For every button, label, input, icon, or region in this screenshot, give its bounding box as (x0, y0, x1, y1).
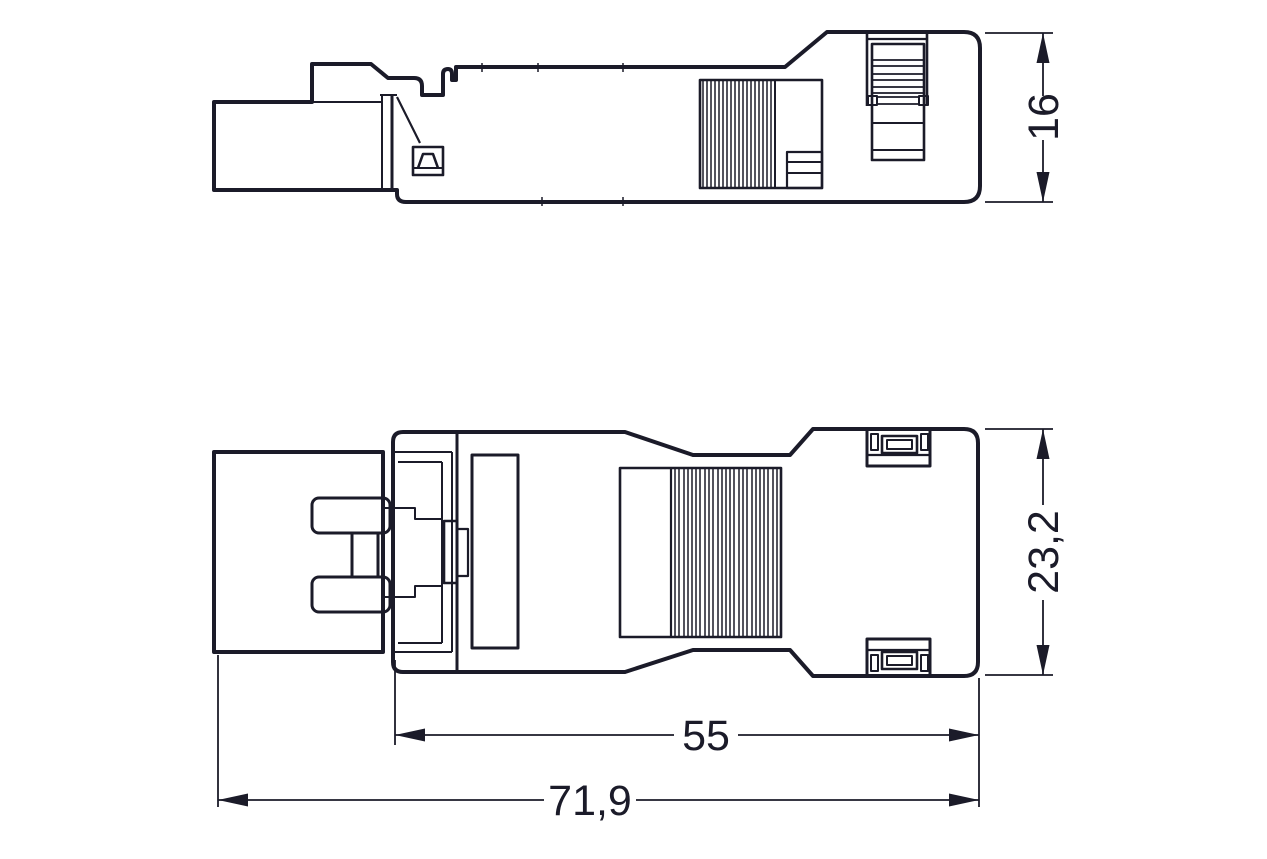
dimension-arrow-down (1037, 645, 1050, 675)
seam-tick (482, 63, 623, 206)
wedge-icon (418, 154, 438, 168)
dimension-arrow-left (218, 794, 248, 807)
dimension-overall-length: 71,9 (218, 655, 979, 825)
dimension-label: 71,9 (548, 777, 632, 825)
plan-view: 23,2 55 71,9 (214, 429, 1068, 825)
grip-corner-box-lines (787, 162, 822, 173)
center-tab-inner (457, 529, 468, 576)
connector-dimension-drawing: 16 (0, 0, 1267, 859)
dimension-arrow-right (949, 794, 979, 807)
pin-upper (312, 498, 390, 533)
dimension-label: 55 (682, 712, 730, 760)
marking-window (472, 455, 518, 648)
latch-top (867, 429, 930, 466)
slider-lower-lines (872, 123, 924, 150)
dimension-label: 16 (1020, 93, 1068, 141)
dimension-arrow-up (1037, 33, 1050, 63)
latch-center-inner (887, 440, 912, 449)
side-view: 16 (214, 32, 1068, 206)
latch-bottom (867, 639, 930, 676)
plug-nose (214, 452, 383, 652)
collar-detail (383, 433, 468, 671)
locking-slider-detail (867, 32, 928, 160)
dimension-label: 23,2 (1020, 510, 1068, 594)
symbol-box (413, 147, 443, 175)
slider-body (872, 44, 924, 160)
cable-grip-hatch-plan (620, 468, 781, 637)
hatch-lines (703, 81, 771, 187)
pin-center-bar (352, 533, 378, 577)
pin-lower (312, 577, 390, 612)
slider-ribs (872, 60, 924, 93)
dimension-arrow-up (1037, 429, 1050, 459)
latch-tab-left (871, 655, 878, 671)
grip-corner-box (787, 152, 822, 188)
dimension-arrow-left (395, 729, 425, 742)
hatch-lines (675, 469, 777, 636)
dimension-arrow-right (949, 729, 979, 742)
center-tab-outer (444, 521, 457, 583)
slider-clip-bar (877, 97, 918, 104)
dimension-housing-length: 55 (395, 660, 979, 807)
body-chamfer-edge (397, 97, 420, 143)
latch-tab-left (871, 434, 878, 450)
flange-detail (312, 63, 623, 206)
collar-bottom-bar (393, 643, 452, 652)
dimension-arrow-down (1037, 172, 1050, 202)
cable-grip-hatch (700, 80, 822, 188)
dimension-plan-height: 23,2 (985, 429, 1068, 675)
latch-center-inner (887, 656, 912, 665)
contact-pins (312, 498, 390, 612)
collar-top-bar (393, 452, 452, 462)
dimension-side-height: 16 (985, 33, 1068, 202)
latch-tab-right (921, 434, 928, 450)
side-view-outline (214, 32, 980, 202)
technical-drawing-canvas: 16 (0, 0, 1267, 859)
latch-tab-right (921, 655, 928, 671)
clamp-symbol-icon (413, 147, 443, 175)
